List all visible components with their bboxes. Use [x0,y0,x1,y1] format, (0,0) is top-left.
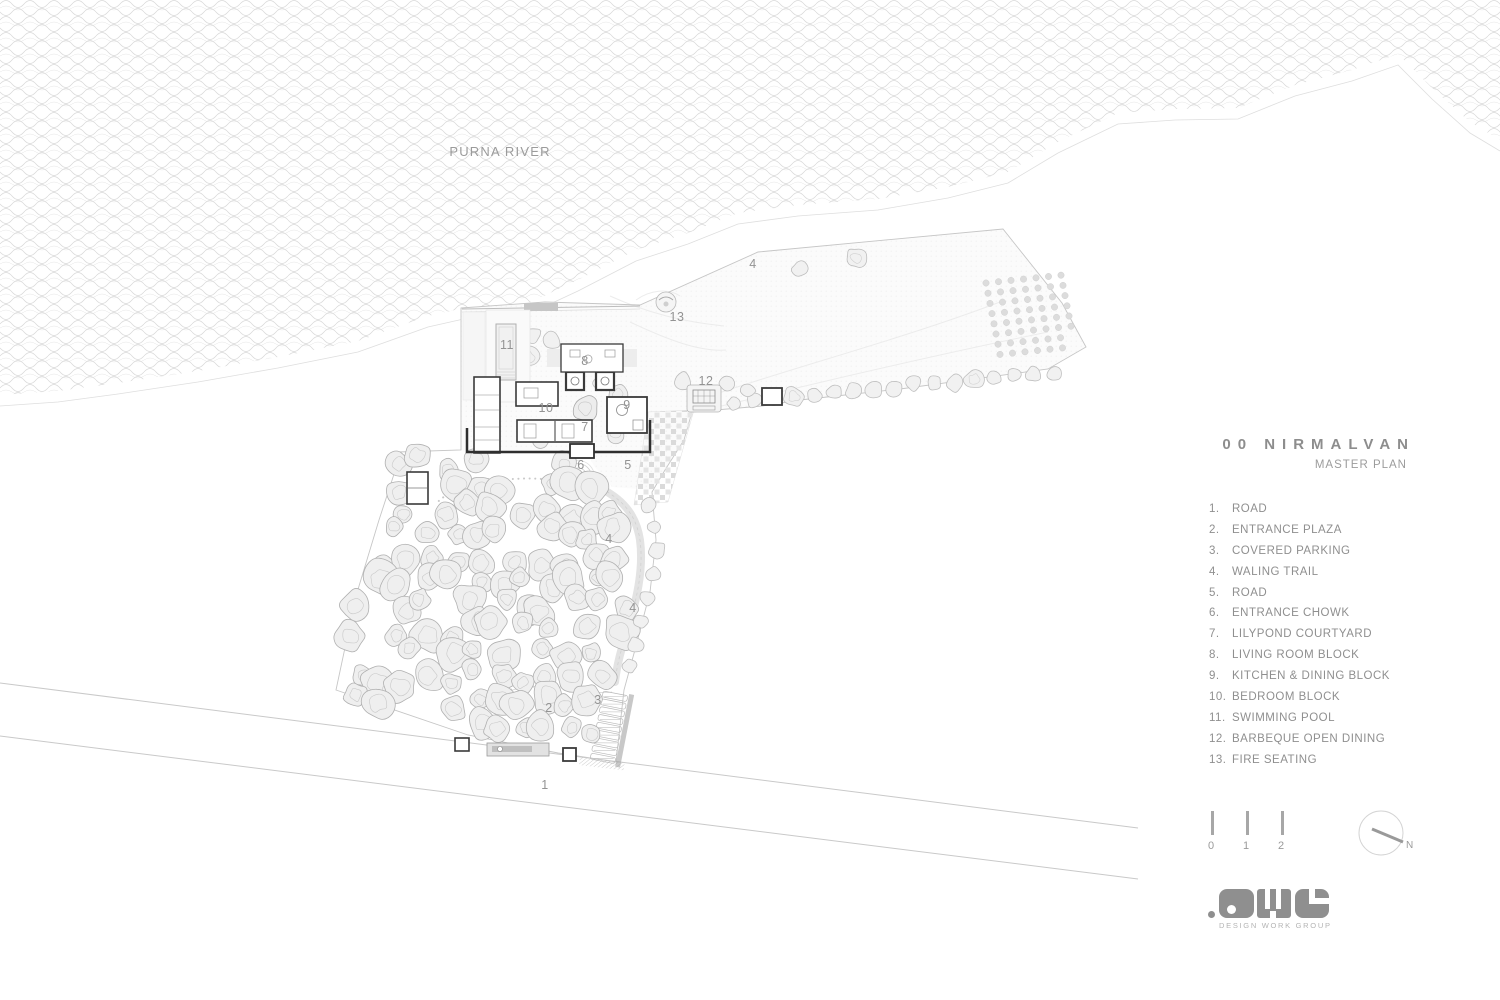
logo-dot [1208,911,1215,918]
legend-item-number: 7. [1209,624,1232,645]
tree [847,249,867,267]
sheet-subtitle: MASTER PLAN [1200,459,1407,471]
logo-caption: DESIGN WORK GROUP [1219,921,1332,930]
logo-letter-d [1219,889,1254,918]
plan-label-13: 13 [670,310,685,324]
legend-item-13: 13.FIRE SEATING [1209,750,1429,771]
tree [361,689,395,719]
legend-item-label: ENTRANCE PLAZA [1232,524,1342,536]
logo-letter-g [1295,889,1329,918]
tree [404,444,430,467]
legend-item-number: 5. [1209,583,1232,604]
project-title: 00 NIRMALVAN [1200,436,1415,453]
plan-label-8: 8 [581,354,588,368]
tree [441,696,465,721]
plan-label-6: 6 [577,458,584,472]
plan-label-7: 7 [581,420,588,434]
scale-tick-bar [1246,811,1249,835]
legend-item-number: 9. [1209,666,1232,687]
scale-tick-1: 1 [1244,811,1279,859]
scale-tick-bar [1281,811,1284,835]
tree [987,371,1001,384]
tree [573,614,600,639]
legend-item-5: 5.ROAD [1209,583,1429,604]
legend-item-label: WALING TRAIL [1232,566,1319,578]
scale-tick-label: 1 [1243,840,1249,852]
plan-label-4: 4 [629,601,636,615]
legend-item-number: 11. [1209,708,1232,729]
tree [647,521,660,533]
legend-item-number: 6. [1209,603,1232,624]
legend-item-11: 11.SWIMMING POOL [1209,708,1429,729]
tree [649,543,665,559]
tree [497,589,516,610]
master-plan-sheet: PURNA RIVER1234445678910111213N 00 NIRMA… [0,0,1500,1000]
tree [409,589,431,611]
legend-item-2: 2.ENTRANCE PLAZA [1209,520,1429,541]
legend-item-9: 9.KITCHEN & DINING BLOCK [1209,666,1429,687]
tree [886,381,902,397]
legend-item-number: 4. [1209,562,1232,583]
plan-label-11: 11 [500,338,514,352]
scale-bar: 012 [1209,811,1319,859]
legend-item-number: 3. [1209,541,1232,562]
legend-item-label: LIVING ROOM BLOCK [1232,649,1359,661]
tree [339,588,368,621]
scale-tick-0: 0 [1209,811,1244,859]
tree [512,612,532,633]
plan-label-12: 12 [699,374,714,388]
scale-tick-2: 2 [1279,811,1314,859]
legend-item-7: 7.LILYPOND COURTYARD [1209,624,1429,645]
dwg-logo: DESIGN WORK GROUP [1205,886,1335,932]
plan-label-4: 4 [749,257,756,271]
legend-item-8: 8.LIVING ROOM BLOCK [1209,645,1429,666]
tree [415,521,439,542]
scale-tick-label: 0 [1208,840,1214,852]
legend-list: 1.ROAD2.ENTRANCE PLAZA3.COVERED PARKING4… [1209,499,1429,771]
tree [561,716,581,737]
plan-label-5: 5 [624,458,631,472]
legend-item-label: ROAD [1232,587,1267,599]
legend-item-number: 10. [1209,687,1232,708]
tree [532,639,553,659]
tree [1008,369,1021,382]
legend-item-number: 13. [1209,750,1232,771]
tree [640,592,655,606]
title-block: 00 NIRMALVAN MASTER PLAN [1200,436,1408,471]
legend-item-1: 1.ROAD [1209,499,1429,520]
north-arrow: N [1359,811,1413,855]
legend-item-label: BARBEQUE OPEN DINING [1232,733,1385,745]
tree [468,549,494,574]
tree [585,588,607,611]
legend-item-label: SWIMMING POOL [1232,712,1335,724]
tree [334,619,365,652]
tree [906,376,921,392]
tree [510,503,535,529]
legend-item-number: 8. [1209,645,1232,666]
plan-label-9: 9 [623,398,630,412]
legend-item-number: 12. [1209,729,1232,750]
plan-label-1: 1 [541,778,548,792]
tree [582,643,600,662]
legend-item-number: 2. [1209,520,1232,541]
legend-item-12: 12.BARBEQUE OPEN DINING [1209,729,1429,750]
tree [441,674,462,695]
legend-item-4: 4.WALING TRAIL [1209,562,1429,583]
tree [462,659,481,680]
tree [435,502,458,529]
plan-label-10: 10 [539,401,554,415]
legend-item-3: 3.COVERED PARKING [1209,541,1429,562]
logo-letter-w [1257,889,1291,918]
tree [928,376,940,390]
north-label: N [1406,840,1413,851]
legend-item-number: 1. [1209,499,1232,520]
legend-item-label: FIRE SEATING [1232,754,1317,766]
tree [582,724,600,743]
scale-tick-bar [1211,811,1214,835]
fire-seating [656,292,676,312]
legend-item-label: ROAD [1232,503,1267,515]
plan-label-2: 2 [545,701,552,715]
legend-item-label: KITCHEN & DINING BLOCK [1232,670,1390,682]
tree [622,659,637,673]
plan-label-4: 4 [605,532,612,546]
logo-d-hole [1227,905,1236,914]
legend-item-10: 10.BEDROOM BLOCK [1209,687,1429,708]
entrance-gate [570,444,594,458]
plan-label-3: 3 [594,693,601,707]
legend-item-6: 6.ENTRANCE CHOWK [1209,603,1429,624]
legend-item-label: BEDROOM BLOCK [1232,691,1340,703]
legend-item-label: COVERED PARKING [1232,545,1350,557]
scale-tick-label: 2 [1278,840,1284,852]
river-label: PURNA RIVER [449,144,550,159]
tree [646,567,661,581]
legend-item-label: LILYPOND COURTYARD [1232,628,1372,640]
legend-item-label: ENTRANCE CHOWK [1232,607,1350,619]
